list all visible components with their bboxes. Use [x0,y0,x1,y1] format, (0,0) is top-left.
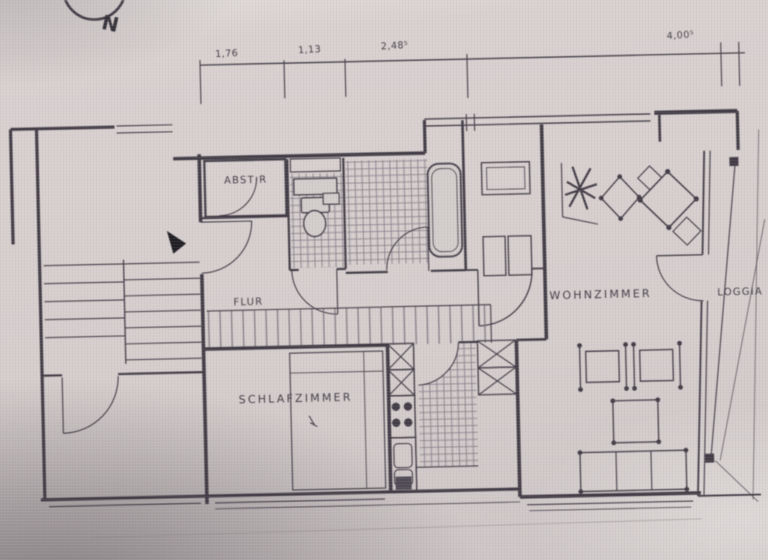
burner-icon [392,418,401,427]
plant-icon [561,162,597,225]
dimension-ticks [200,42,740,104]
shaft-hatch [290,158,340,172]
window-mullion [466,114,474,131]
bed-lines [290,351,386,490]
room-wc [287,158,347,315]
wall [41,496,207,500]
wall [290,269,346,270]
room-bath [342,120,465,273]
dining-set [598,165,701,247]
sofa [580,450,687,491]
wall [42,372,204,376]
room-outline [204,159,286,217]
sink-dark [395,476,411,489]
sheet-edge [92,519,702,538]
sofa-seats [616,451,652,491]
wall [542,124,547,339]
wall [346,270,466,273]
kitchen-lower [387,339,550,500]
hall-stair-band [207,305,492,349]
chair [673,217,702,246]
window-sill [529,507,691,511]
bed-mark [309,416,317,427]
dining-table [640,171,697,228]
door-arc [62,376,119,433]
wall [737,111,738,150]
corner-dots [598,168,699,231]
room-wohnzimmer: WOHNZIMMER [512,121,708,511]
sheet-edge [745,129,767,499]
wall [520,493,701,497]
sink-icon [394,443,413,467]
window-band [424,114,650,126]
cistern-icon [294,178,337,195]
kitchen-upper [463,161,546,326]
tiled-floor [345,159,429,265]
burner-icon [392,402,401,411]
cursor-arrow-icon [167,230,187,253]
room-loggia-label: LOGGIA [717,286,763,298]
chair [637,166,662,191]
window-sill [49,503,201,506]
stairwell [39,258,205,434]
toilet-icon [303,210,326,236]
stove-icon [389,395,416,438]
wall [287,159,290,270]
window-sill [527,501,693,505]
counter-inner [486,167,524,190]
north-indicator: N [63,0,127,38]
window-sill [215,499,385,503]
burner-icon [404,402,413,411]
wall [654,111,737,113]
chair [601,176,640,219]
cabinet-icon [508,236,532,276]
burner-icon [404,418,413,427]
dimension-value: 2,48⁵ [381,40,409,53]
armchair [586,351,620,383]
room-abstellraum-label: ABST·R [224,175,268,187]
sink-icon [323,193,339,204]
room-loggia: LOGGIA [654,129,768,503]
door-leaf [657,255,703,256]
window-sill [215,502,520,509]
room-wohnzimmer-label: WOHNZIMMER [549,287,652,302]
wall [207,492,391,496]
door-arc [657,255,704,302]
armchair [640,349,674,381]
room-flur: FLUR [206,292,491,349]
dimension-line: 1,76 1,13 2,48⁵ 4,00⁵ [200,28,746,104]
wall [659,115,660,142]
north-label: N [99,10,121,37]
coffee-table [613,400,659,443]
entry-door-arc [201,221,253,273]
corner-dots [575,341,689,494]
dimension-value: 1,76 [215,48,239,60]
cabinet-icon [483,236,506,275]
wall [204,345,391,496]
room-abstellraum: ABST·R [204,159,286,217]
dimension-value: 4,00⁵ [666,29,694,42]
stair-treads-left [44,264,126,338]
counter-edge [413,343,416,491]
stair-treads-right [124,262,202,360]
room-schlafzimmer-label: SCHLAFZIMMER [239,391,353,407]
dimension-baseline [200,53,745,65]
wall [516,340,520,497]
post-icon [705,454,714,463]
dimension-value: 1,13 [298,44,322,56]
wall [173,153,425,159]
tiled-floor [417,342,478,467]
post-icon [729,157,738,166]
floor-plan-drawing: N 1,76 1,13 2,48⁵ 4,00⁵ [0,0,768,560]
wall [10,127,117,244]
wall [516,339,546,340]
floor-plan-photo: N 1,76 1,13 2,48⁵ 4,00⁵ [0,0,768,560]
loggia-railing [704,160,742,457]
window [116,125,172,133]
wall [36,129,44,500]
sofa-set [575,341,689,494]
room-flur-label: FLUR [233,297,263,309]
wall [424,120,425,153]
